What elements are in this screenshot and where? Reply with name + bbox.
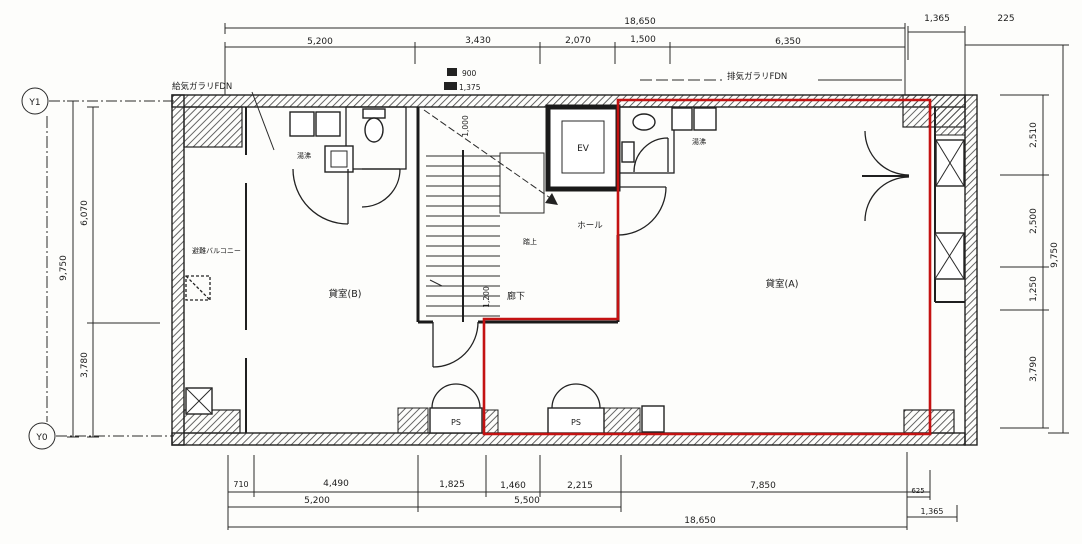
dim-bot-s4: 1,460	[500, 481, 526, 491]
kitchenette-b-label: 湯沸	[297, 151, 311, 160]
dim-bot-g1: 5,200	[304, 496, 330, 506]
door-hall-b	[293, 169, 348, 224]
door-ps-left	[432, 384, 480, 408]
dim-right-s1: 2,510	[1029, 122, 1039, 148]
dim-corridor-width: 1,200	[482, 286, 491, 308]
room-b-label: 貸室(B)	[329, 288, 362, 300]
room-a-label: 貸室(A)	[766, 278, 799, 290]
dim-right-s2: 2,500	[1029, 208, 1039, 234]
dim-bot-s3: 1,825	[439, 480, 465, 490]
toilet-tank-a	[622, 142, 634, 162]
ps-right-label: PS	[571, 418, 581, 427]
grid-markers: Y1 Y0	[22, 88, 174, 449]
elevator-label: EV	[577, 144, 590, 154]
dim-bot-g2: 5,500	[514, 496, 540, 506]
door-hall-a	[618, 187, 666, 235]
balcony-label: 避難バルコニー	[192, 246, 241, 255]
dims-bottom: 710 4,490 1,825 1,460 2,215 7,850 625 5,…	[228, 452, 957, 530]
dim-bot-s6: 7,850	[750, 481, 776, 491]
dims-inner: 1,000 1,200	[461, 115, 491, 308]
grid-label-y0: Y0	[35, 433, 47, 443]
louver-notes: 給気ガラリFDN 排気ガラリFDN	[172, 71, 902, 150]
dim-top-s2: 3,430	[465, 36, 491, 46]
dim-bot-s7: 625	[911, 487, 924, 495]
dim-top-r1: 1,365	[924, 14, 950, 24]
dim-top-s3: 2,070	[565, 36, 591, 46]
dim-top-k2: 1,375	[459, 83, 481, 92]
hall-label: ホール	[577, 221, 603, 231]
dim-bot-total: 18,650	[684, 516, 716, 526]
landing-label: 踏上	[523, 237, 537, 246]
corridor-label: 廊下	[507, 290, 525, 302]
dim-right-s4: 3,790	[1029, 356, 1039, 382]
stair-arrow	[545, 193, 558, 205]
toilet-bowl-a	[633, 114, 655, 130]
dim-right-total: 9,750	[1050, 242, 1060, 268]
dim-bot-s2: 4,490	[323, 479, 349, 489]
elevator: EV	[548, 107, 618, 189]
exhaust-louver-note: 排気ガラリFDN	[727, 71, 787, 82]
door-wc-a	[634, 138, 668, 172]
stair	[424, 110, 558, 322]
dims-top: 18,650 5,200 3,430 2,070 1,500 6,350 1,3…	[225, 14, 1015, 95]
dim-top-s4: 1,500	[630, 35, 656, 45]
door-double-a-bottom	[865, 177, 909, 221]
supply-louver-note: 給気ガラリFDN	[172, 81, 232, 92]
dim-top-k1: 900	[462, 69, 477, 78]
door-double-a-top	[865, 131, 909, 175]
door-ps-right	[552, 384, 600, 408]
toilet-tank-b	[363, 109, 385, 118]
dims-right: 2,510 2,500 1,250 3,790 9,750	[965, 45, 1069, 433]
dim-left-total: 9,750	[59, 255, 69, 281]
dim-bot-r1: 1,365	[921, 507, 944, 516]
balcony-zone: 避難バルコニー	[186, 107, 250, 433]
dim-right-s3: 1,250	[1029, 276, 1039, 302]
dim-top-s5: 6,350	[775, 37, 801, 47]
fixtures-unit-b: 湯沸	[290, 109, 385, 172]
floor-plan-drawing: Y1 Y0 避難バルコニー	[0, 0, 1082, 544]
dim-left-s1: 6,070	[80, 200, 90, 226]
pipe-shafts: PS PS	[398, 406, 664, 433]
dim-top-r2: 225	[997, 14, 1014, 24]
dim-top-s1: 5,200	[307, 37, 333, 47]
shafts-right	[935, 107, 965, 279]
kitchenette-a-label: 湯沸	[692, 137, 706, 146]
door-corridor-b	[433, 322, 478, 367]
floor-plan-page: Y1 Y0 避難バルコニー	[0, 0, 1082, 544]
door-wc-b	[362, 169, 400, 207]
ps-left-label: PS	[451, 418, 461, 427]
dim-bot-s1: 710	[233, 480, 248, 489]
room-labels: 貸室(B) 貸室(A) ホール 踏上 廊下	[329, 221, 799, 302]
dims-left: 9,750 6,070 3,780	[59, 101, 160, 437]
interior-walls	[346, 107, 965, 322]
dim-top-total: 18,650	[624, 17, 656, 27]
grid-label-y1: Y1	[28, 98, 40, 108]
fixtures-unit-a: 湯沸	[622, 108, 716, 162]
toilet-bowl-b	[365, 118, 383, 142]
dim-bot-s5: 2,215	[567, 481, 593, 491]
dim-stair-width: 1,000	[461, 115, 470, 137]
dim-left-s2: 3,780	[80, 352, 90, 378]
pier-top-left	[184, 107, 242, 147]
